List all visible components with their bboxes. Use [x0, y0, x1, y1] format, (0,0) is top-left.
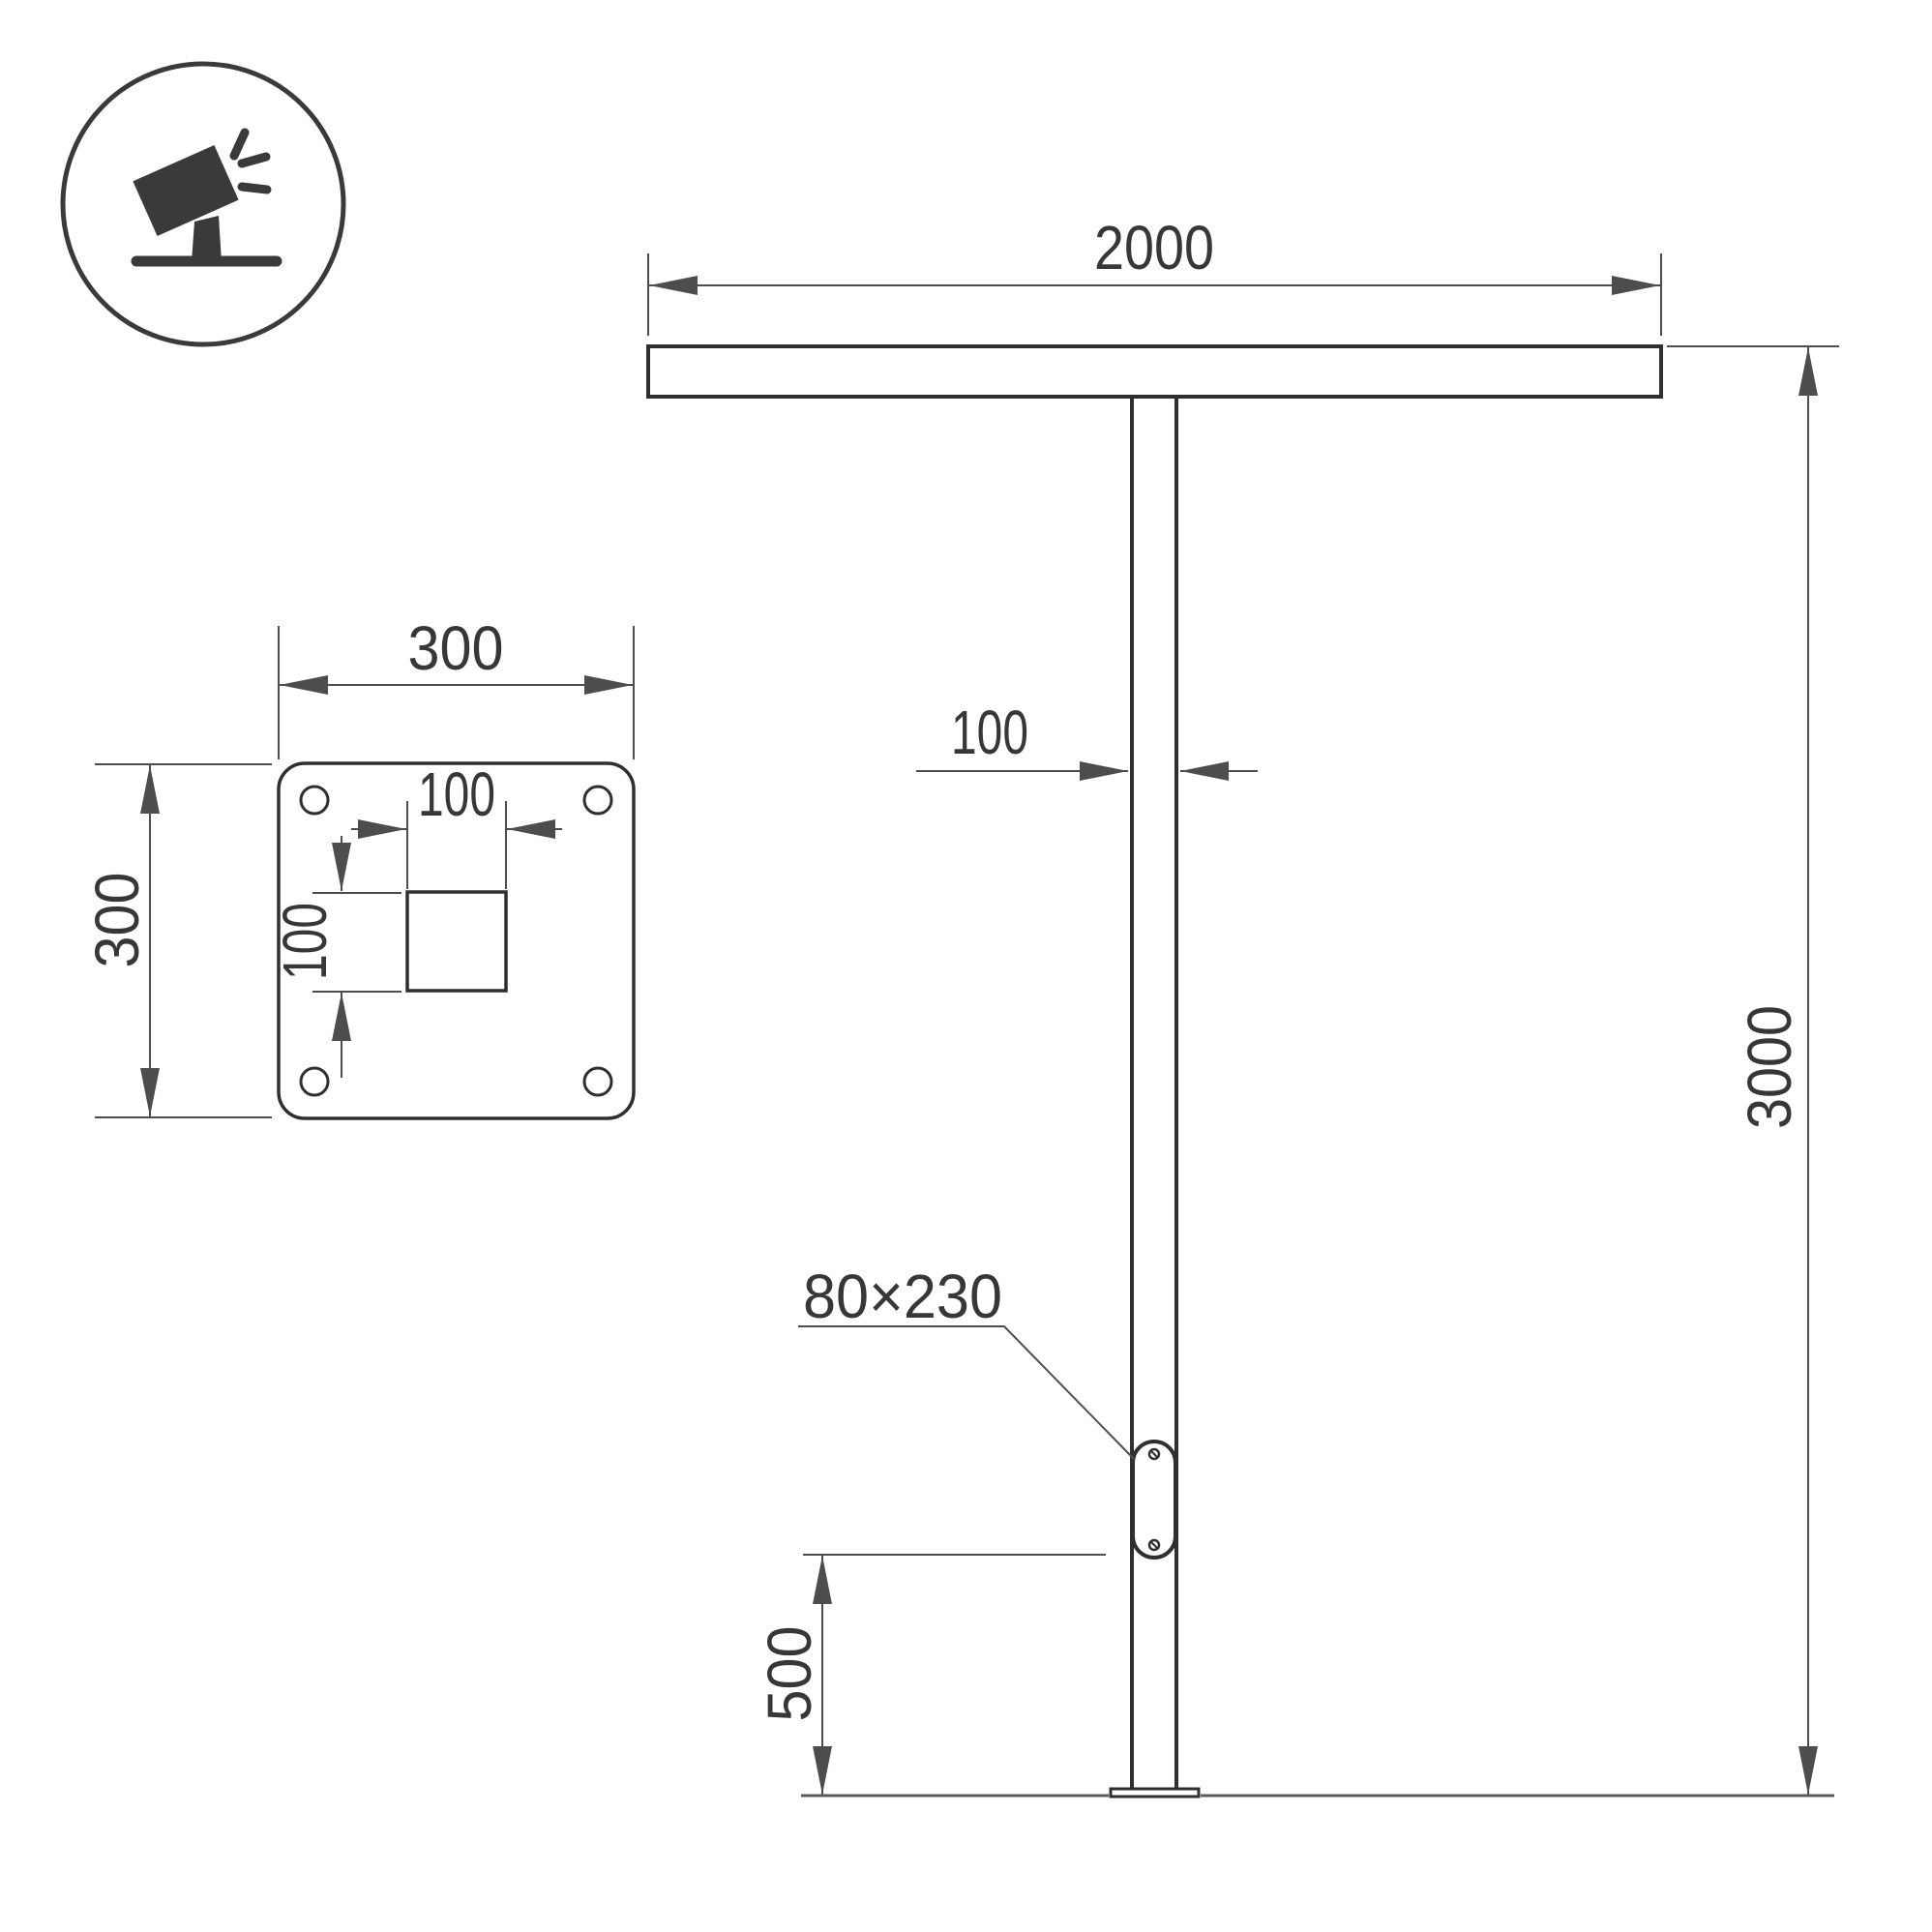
floodlight-icon — [63, 64, 343, 344]
pole-width-dimension: 100 — [916, 698, 1258, 771]
hatch-leader-line — [798, 1326, 1134, 1459]
hatch-screw-top-slot — [1151, 1451, 1158, 1458]
crossbar — [648, 346, 1661, 397]
hatch-height-dimension: 500 — [755, 1555, 1106, 1795]
square-height-dimension: 100 — [270, 836, 401, 1078]
light-rays-icon — [234, 133, 267, 190]
base-plate-top-view: 300 300 100 100 — [82, 613, 634, 1118]
plate-width-label: 300 — [408, 613, 504, 683]
plate-height-dimension: 300 — [82, 764, 272, 1117]
technical-drawing-canvas: 300 300 100 100 — [0, 0, 1932, 1932]
mounting-hole-bottom-left — [301, 1068, 328, 1095]
hatch-size-label: 80×230 — [803, 1262, 1002, 1331]
pole-cross-section-square — [407, 892, 506, 991]
crossbar-width-label: 2000 — [1094, 213, 1214, 282]
hatch-size-callout: 80×230 — [798, 1262, 1134, 1459]
hatch-height-label: 500 — [755, 1626, 824, 1722]
hatch-screw-bottom-slot — [1151, 1542, 1158, 1549]
access-hatch — [1133, 1442, 1175, 1558]
crossbar-width-dimension: 2000 — [648, 213, 1661, 336]
pole-width-label: 100 — [951, 698, 1028, 767]
floodlight-head — [133, 145, 238, 236]
pole-front-view: 2000 100 3000 80×230 500 — [648, 213, 1839, 1797]
square-width-label: 100 — [418, 759, 495, 829]
plate-height-label: 300 — [82, 873, 152, 968]
mounting-hole-top-left — [301, 787, 328, 814]
mounting-hole-top-right — [584, 787, 611, 814]
total-height-dimension: 3000 — [1667, 346, 1839, 1795]
mounting-hole-bottom-right — [584, 1068, 611, 1095]
total-height-label: 3000 — [1735, 1005, 1804, 1129]
square-height-label: 100 — [270, 903, 340, 980]
square-width-dimension: 100 — [351, 759, 562, 889]
plate-width-dimension: 300 — [279, 613, 634, 759]
drawing-svg: 300 300 100 100 — [0, 0, 1932, 1932]
base-flange — [1111, 1789, 1199, 1797]
floodlight-stand — [192, 216, 222, 262]
